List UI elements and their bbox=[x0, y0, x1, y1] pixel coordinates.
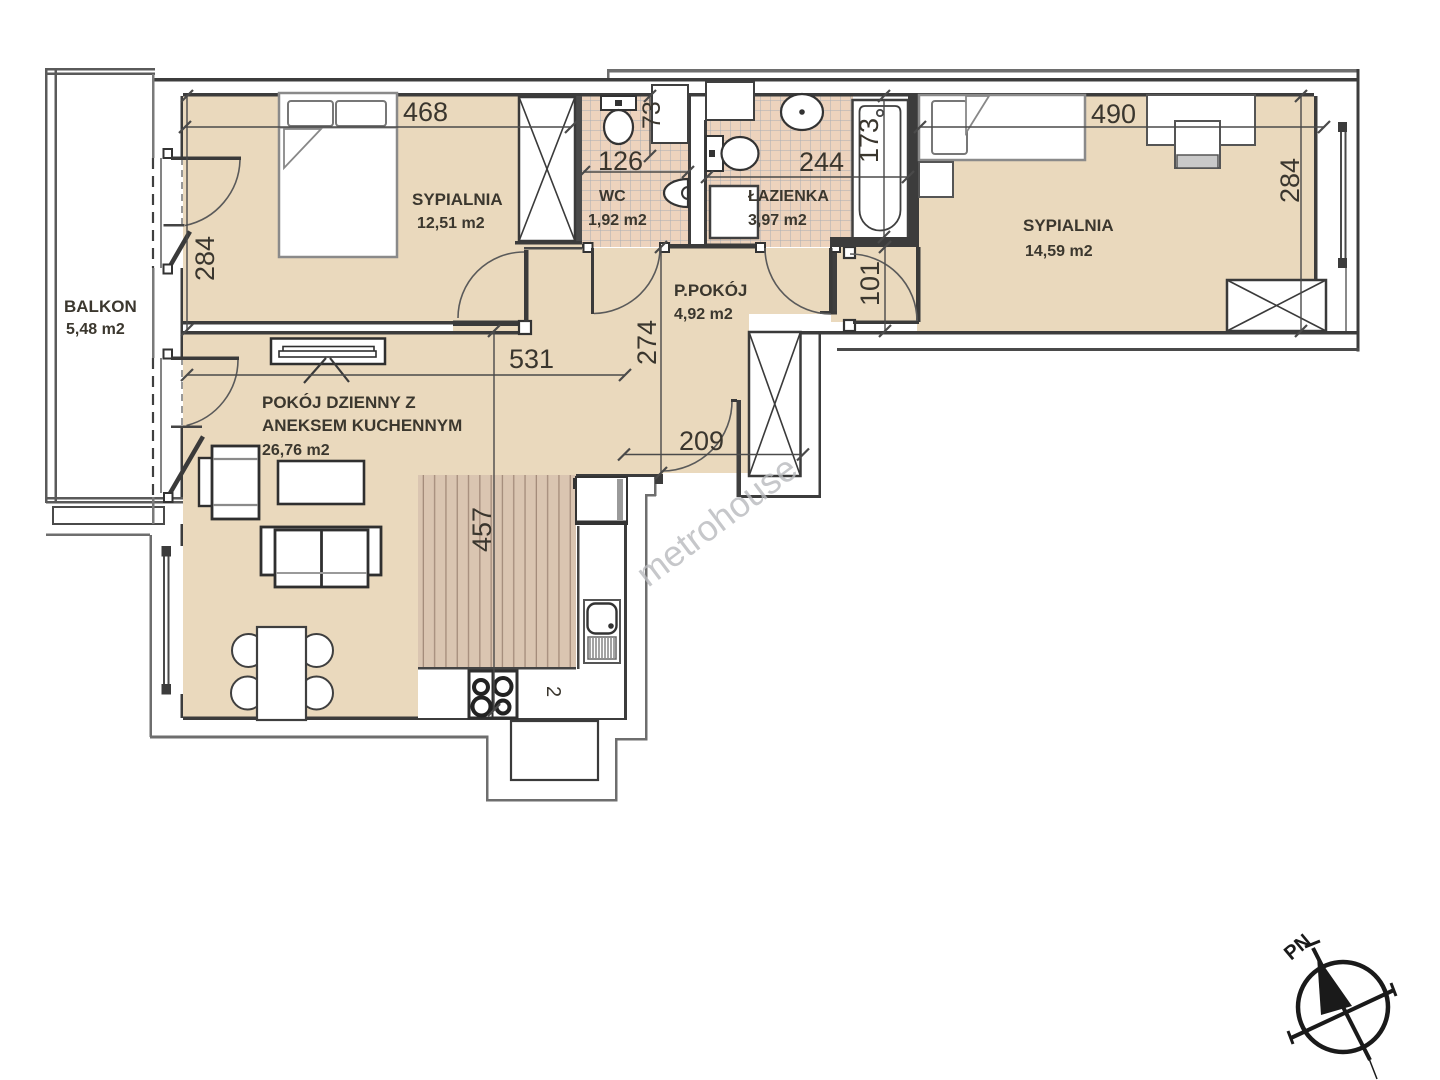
svg-text:209: 209 bbox=[679, 426, 724, 456]
svg-text:1,92 m2: 1,92 m2 bbox=[588, 212, 647, 229]
svg-text:531: 531 bbox=[509, 344, 554, 374]
svg-text:457: 457 bbox=[467, 507, 497, 552]
svg-text:BALKON: BALKON bbox=[64, 297, 137, 316]
svg-text:SYPIALNIA: SYPIALNIA bbox=[1023, 216, 1114, 235]
svg-text:ŁAZIENKA: ŁAZIENKA bbox=[748, 188, 829, 205]
svg-text:468: 468 bbox=[403, 97, 448, 127]
svg-text:P.POKÓJ: P.POKÓJ bbox=[674, 281, 747, 300]
svg-text:284: 284 bbox=[1275, 158, 1305, 203]
svg-text:SYPIALNIA: SYPIALNIA bbox=[412, 190, 503, 209]
svg-text:173: 173 bbox=[854, 118, 884, 163]
svg-text:2: 2 bbox=[542, 686, 564, 697]
svg-text:126: 126 bbox=[598, 146, 643, 176]
svg-text:3,97 m2: 3,97 m2 bbox=[748, 212, 807, 229]
svg-text:ANEKSEM KUCHENNYM: ANEKSEM KUCHENNYM bbox=[262, 416, 462, 435]
svg-text:26,76 m2: 26,76 m2 bbox=[262, 442, 330, 459]
svg-text:244: 244 bbox=[799, 147, 844, 177]
svg-text:490: 490 bbox=[1091, 99, 1136, 129]
svg-text:14,59 m2: 14,59 m2 bbox=[1025, 243, 1093, 260]
svg-text:101: 101 bbox=[855, 261, 885, 306]
svg-text:284: 284 bbox=[190, 236, 220, 281]
svg-text:73: 73 bbox=[638, 101, 666, 129]
svg-text:5,48 m2: 5,48 m2 bbox=[66, 321, 125, 338]
svg-text:274: 274 bbox=[632, 320, 662, 365]
svg-text:12,51 m2: 12,51 m2 bbox=[417, 215, 485, 232]
svg-text:4,92 m2: 4,92 m2 bbox=[674, 306, 733, 323]
svg-text:POKÓJ DZIENNY Z: POKÓJ DZIENNY Z bbox=[262, 393, 416, 412]
svg-text:WC: WC bbox=[599, 188, 626, 205]
